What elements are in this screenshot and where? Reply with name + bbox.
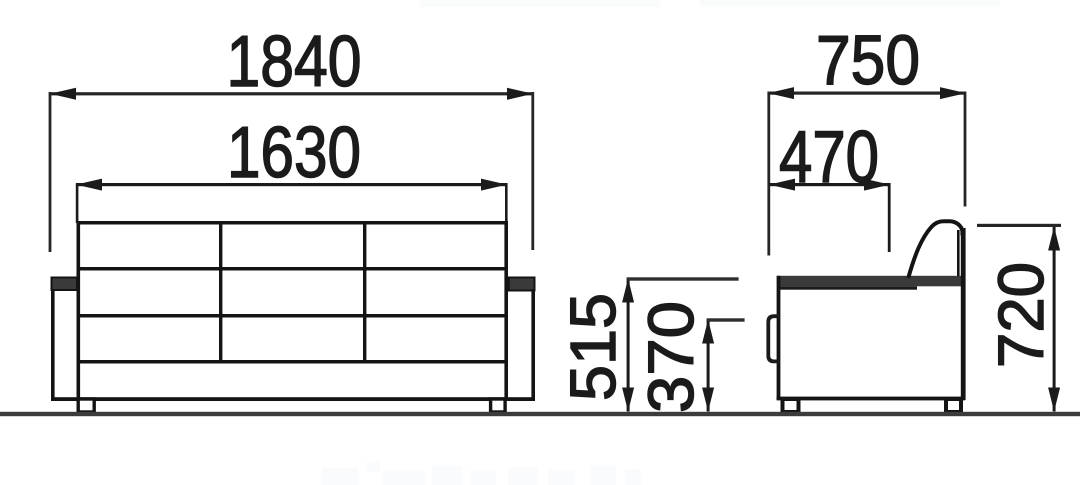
svg-text:370: 370 [635,301,707,413]
svg-text:720: 720 [985,262,1057,368]
svg-text:515: 515 [557,293,629,401]
svg-text:1630: 1630 [227,113,361,193]
svg-text:1840: 1840 [227,22,362,102]
svg-text:750: 750 [816,21,920,99]
